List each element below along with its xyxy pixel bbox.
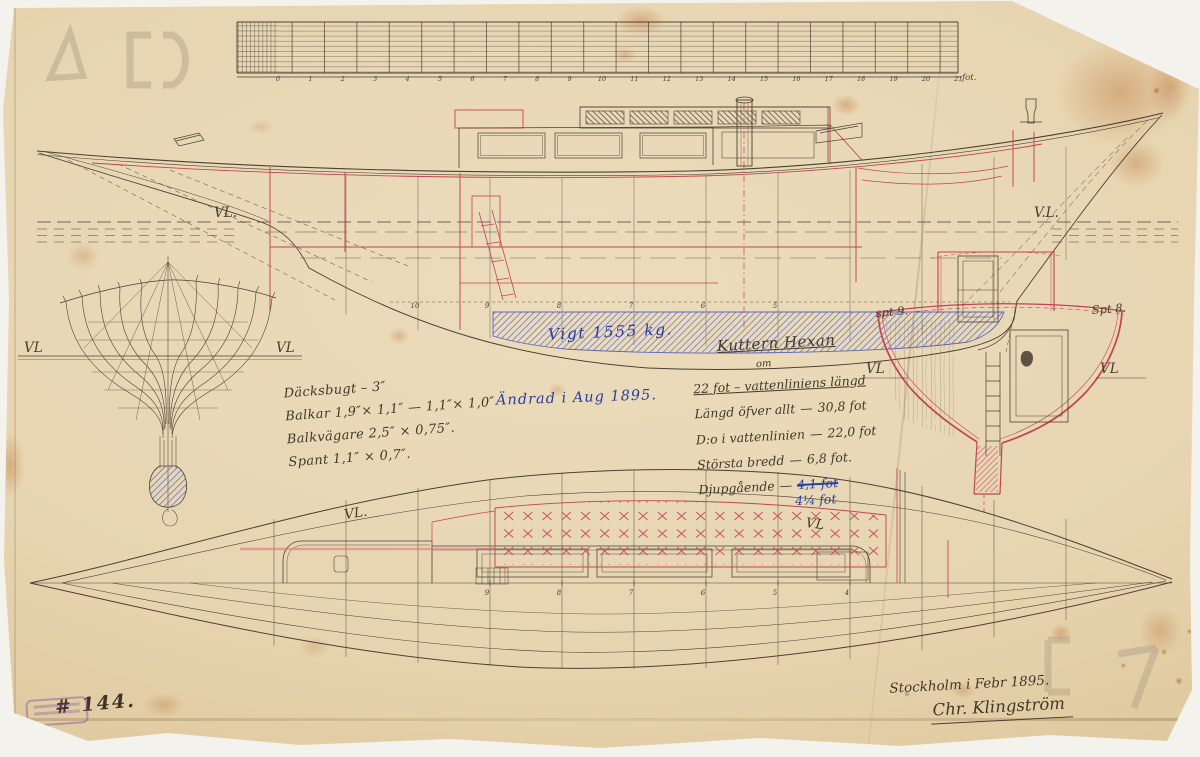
title-block: Kuttern Hexan om 22 fot – vattenliniens …	[690, 326, 904, 515]
svg-text:16: 16	[792, 75, 800, 83]
svg-text:14: 14	[727, 75, 735, 83]
sheer-ticks	[63, 275, 275, 302]
keel-bulb-section	[149, 466, 186, 507]
svg-text:2: 2	[340, 75, 345, 83]
stencil-marks-top-left	[50, 32, 186, 85]
scale-bar: 0123456789101112131415161718192021 fot.	[237, 22, 976, 83]
svg-text:3: 3	[373, 75, 377, 83]
svg-text:12: 12	[663, 75, 671, 83]
stove-funnel	[737, 100, 752, 166]
svg-text:8: 8	[557, 589, 562, 597]
svg-text:0: 0	[276, 75, 280, 83]
plan-red-area	[240, 501, 886, 567]
spec-value: 30,8 fot	[817, 396, 867, 418]
spec-row: Längd öfver allt — 30,8 fot	[694, 394, 900, 424]
midship-section: VL VL spt 9. Spt 8.	[862, 250, 1146, 514]
section-ladder	[986, 352, 1000, 456]
svg-text:9: 9	[485, 589, 490, 597]
svg-text:8: 8	[535, 75, 539, 83]
spec-row: Största bredd — 6,8 fot.	[697, 444, 903, 474]
waterline-label-bow: VL.	[214, 205, 237, 221]
plan-steps	[476, 568, 508, 584]
stern-bollard	[1020, 99, 1042, 123]
spec-label: D:o i vattenlinien	[695, 424, 805, 449]
spec-label: Djupgående	[698, 477, 775, 500]
svg-text:6: 6	[701, 302, 706, 310]
section-label-spt8: Spt 8.	[1091, 301, 1126, 317]
plan-vl-aft: VL	[805, 515, 826, 533]
spec-dash: —	[779, 476, 792, 496]
fox-spot	[1182, 58, 1193, 69]
section-vl-right: VL	[1100, 361, 1119, 377]
svg-text:9: 9	[485, 302, 490, 310]
svg-text:18: 18	[857, 75, 865, 83]
scantlings-note: Däcksbugt – 3″ Balkar 1,9″× 1,1″ — 1,1″×…	[283, 368, 529, 477]
deckhouse	[174, 97, 1042, 168]
spec-dash: —	[809, 423, 822, 443]
svg-text:7: 7	[629, 589, 634, 597]
scale-bar-numbers: 0123456789101112131415161718192021	[276, 75, 963, 83]
section-keel-hatch	[976, 446, 998, 492]
plan-vl-forward: VL.	[343, 504, 368, 523]
svg-text:8: 8	[557, 302, 562, 310]
spec-label: Längd öfver allt	[694, 399, 796, 424]
waterline-length-line: 22 fot – vattenliniens längd	[693, 368, 899, 398]
svg-text:19: 19	[889, 75, 897, 83]
svg-text:7: 7	[503, 75, 508, 83]
svg-text:13: 13	[695, 75, 703, 83]
svg-text:9: 9	[568, 75, 572, 83]
svg-text:17: 17	[825, 75, 834, 83]
door-latch	[1021, 351, 1033, 367]
aged-paper-sheet: 0123456789101112131415161718192021 fot.	[0, 0, 1200, 757]
svg-text:5: 5	[438, 75, 442, 83]
foredeck-fitting	[174, 133, 204, 146]
waterline-label-stern: V.L.	[1034, 205, 1059, 221]
svg-text:1: 1	[308, 75, 312, 83]
skylight-windows	[586, 111, 800, 124]
archive-stamp	[25, 696, 89, 727]
section-label-spt9: spt 9.	[875, 303, 909, 320]
spec-dash: —	[789, 450, 802, 470]
svg-text:10: 10	[598, 75, 606, 83]
bodyplan-vl-right: VL	[276, 340, 295, 356]
svg-text:7: 7	[629, 302, 634, 310]
profile-station-numbers: 1098765	[411, 302, 778, 310]
body-plan: VL VL	[18, 256, 302, 526]
svg-text:15: 15	[760, 75, 768, 83]
svg-text:6: 6	[470, 75, 474, 83]
svg-text:6: 6	[701, 589, 706, 597]
spec-value: 22,0 fot	[827, 420, 877, 442]
spec-label: Största bredd	[697, 451, 785, 475]
blueprint-line-art: 0123456789101112131415161718192021 fot.	[0, 0, 1200, 757]
scale-bar-unit: fot.	[961, 73, 976, 83]
spec-row: D:o i vattenlinien — 22,0 fot	[695, 419, 901, 449]
svg-text:10: 10	[411, 302, 420, 310]
plan-station-numbers: 987654	[485, 589, 849, 597]
spec-value: 6,8 fot.	[806, 447, 852, 469]
spec-dash: —	[800, 398, 813, 418]
scanned-boat-blueprint: 0123456789101112131415161718192021 fot.	[0, 0, 1200, 757]
bodyplan-vl-left: VL	[24, 340, 43, 356]
deck-plan: 987654	[30, 468, 1172, 669]
svg-text:11: 11	[630, 75, 638, 83]
svg-text:5: 5	[773, 589, 778, 597]
signature-block: Stockholm i Febr 1895. Chr. Klingström	[889, 669, 1074, 727]
aft-skylight	[816, 123, 862, 143]
svg-text:20: 20	[921, 75, 930, 83]
svg-text:4: 4	[405, 75, 410, 83]
svg-text:4: 4	[844, 589, 849, 597]
svg-text:5: 5	[773, 302, 778, 310]
